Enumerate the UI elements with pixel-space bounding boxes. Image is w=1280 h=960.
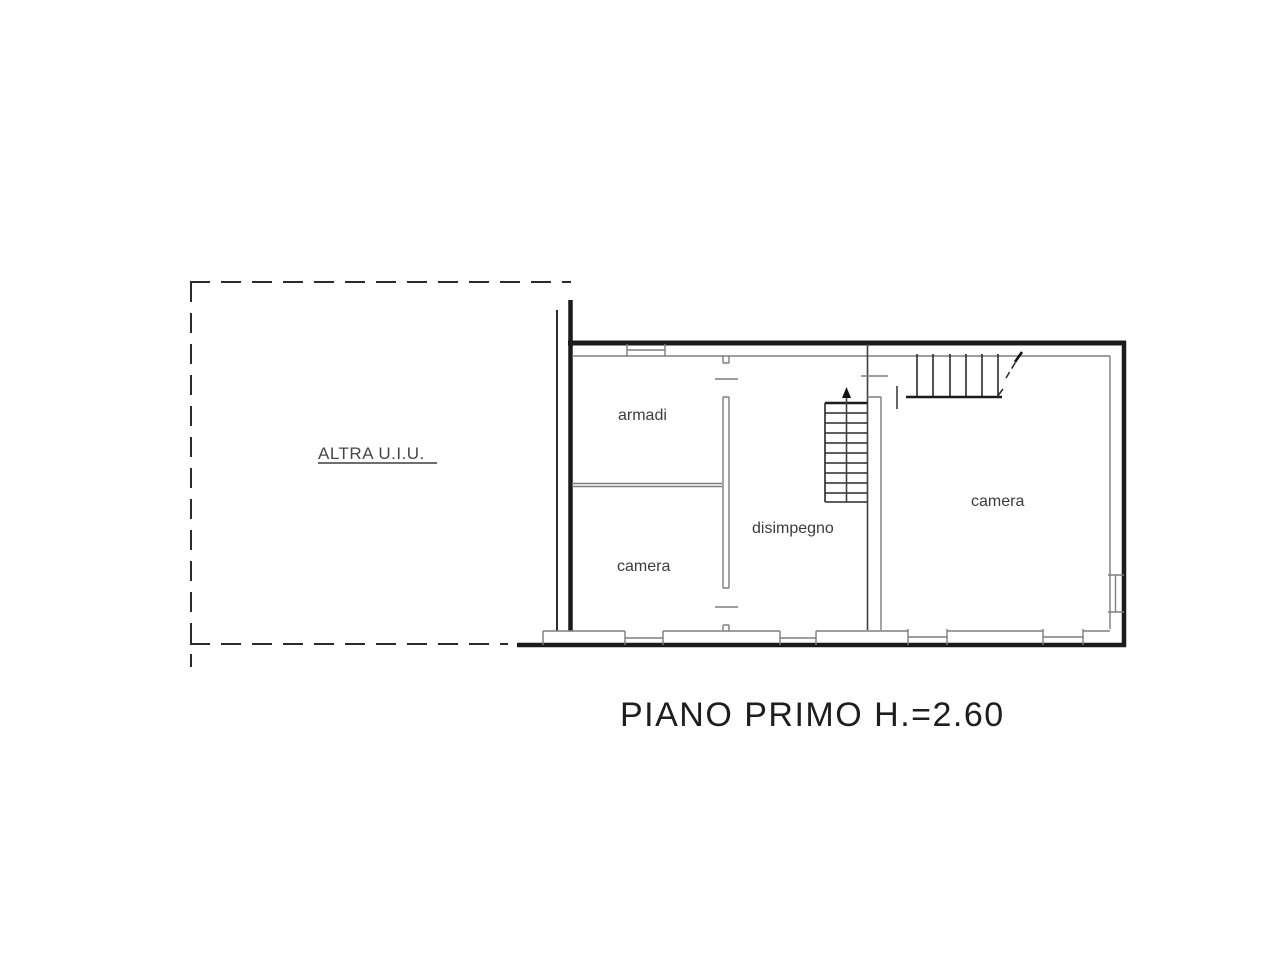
- window-bottom-4: [1043, 629, 1083, 645]
- room-label-camera-right: camera: [971, 493, 1024, 510]
- plan-title: PIANO PRIMO H.=2.60: [620, 696, 1005, 734]
- room-label-disimpegno: disimpegno: [752, 520, 834, 537]
- staircase-upper-run: [906, 352, 1022, 397]
- room-label-camera-left: camera: [617, 558, 670, 575]
- staircase-lower-run: [825, 387, 868, 502]
- floor-plan-page: ALTRA U.I.U. armadi camera disimpegno ca…: [0, 0, 1280, 960]
- stair-up-arrow-icon: [842, 387, 851, 398]
- window-bottom-3: [908, 629, 947, 645]
- windows: [625, 344, 1124, 645]
- interior-walls: [572, 344, 897, 631]
- other-unit-label: ALTRA U.I.U.: [318, 444, 425, 463]
- other-unit-dashed-boundary: [190, 282, 571, 667]
- exterior-walls: [517, 300, 1126, 647]
- room-label-armadi: armadi: [618, 407, 667, 424]
- window-top: [627, 344, 665, 356]
- floor-plan-drawing: ALTRA U.I.U. armadi camera disimpegno ca…: [0, 0, 1280, 960]
